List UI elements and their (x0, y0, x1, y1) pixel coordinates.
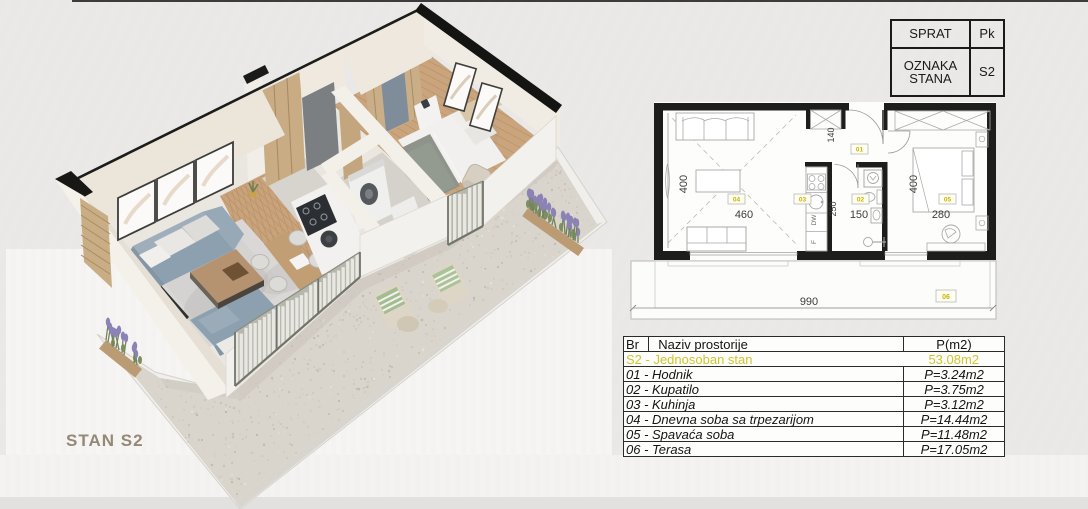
svg-text:06: 06 (942, 294, 950, 301)
svg-text:02: 02 (857, 197, 865, 204)
svg-text:140: 140 (826, 127, 836, 142)
svg-text:250: 250 (828, 201, 838, 216)
svg-text:04: 04 (733, 197, 741, 204)
svg-text:990: 990 (800, 296, 818, 308)
svg-text:05: 05 (944, 197, 952, 204)
svg-text:460: 460 (735, 209, 753, 221)
svg-text:400: 400 (678, 175, 690, 193)
svg-text:400: 400 (908, 175, 920, 193)
svg-text:DW: DW (811, 214, 818, 226)
svg-text:F: F (811, 240, 818, 244)
svg-text:280: 280 (932, 209, 950, 221)
svg-text:150: 150 (850, 209, 868, 221)
svg-text:01: 01 (856, 147, 864, 154)
svg-text:03: 03 (799, 197, 807, 204)
